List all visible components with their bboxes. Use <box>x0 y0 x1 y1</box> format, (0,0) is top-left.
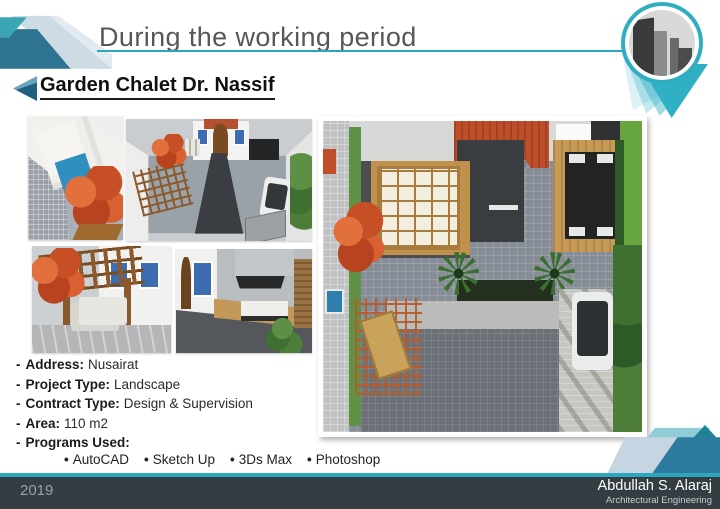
dash: - <box>16 416 21 431</box>
paved-ground <box>32 325 171 353</box>
house-entry <box>489 205 518 210</box>
program-name: AutoCAD <box>73 452 129 467</box>
black-umbrella <box>236 276 285 288</box>
detail-project-type: -Project Type:Landscape <box>16 375 336 395</box>
cushion <box>597 227 613 236</box>
bullet: • <box>307 452 312 467</box>
program-name: Sketch Up <box>153 452 215 467</box>
detail-label: Project Type: <box>26 377 111 392</box>
project-details: -Address:Nusairat -Project Type:Landscap… <box>16 355 336 453</box>
orange-tree <box>333 202 384 286</box>
detail-label: Area: <box>26 416 61 431</box>
thumbnail-pergola-render <box>32 246 171 353</box>
hedge-plants <box>290 146 312 231</box>
detail-area: -Area:110 m2 <box>16 414 336 434</box>
cushion <box>569 154 585 163</box>
building-silhouette <box>654 31 667 76</box>
programs-list: •AutoCAD •Sketch Up •3Ds Max •Photoshop <box>64 452 380 467</box>
bullet: • <box>64 452 69 467</box>
outdoor-sofa <box>241 301 287 316</box>
city-buildings-photo <box>629 10 695 76</box>
outdoor-seating <box>249 139 279 161</box>
program-3dsmax: •3Ds Max <box>230 452 292 467</box>
detail-value: 110 m2 <box>64 416 108 431</box>
detail-label: Contract Type: <box>26 396 120 411</box>
footer-year: 2019 <box>20 482 53 499</box>
outdoor-furniture <box>79 297 126 325</box>
orange-tree <box>148 134 189 173</box>
window <box>234 129 245 146</box>
slide: During the working period Garden Chalet … <box>0 0 720 509</box>
window <box>192 261 212 296</box>
detail-programs-used: -Programs Used: <box>16 433 336 453</box>
dash: - <box>16 435 21 450</box>
map-pin-icon <box>621 2 703 84</box>
project-name: Garden Chalet Dr. Nassif <box>40 74 275 100</box>
small-pool <box>325 289 344 314</box>
program-sketchup: •Sketch Up <box>144 452 215 467</box>
bullet: • <box>144 452 149 467</box>
corner-decoration-top-left <box>0 8 112 74</box>
pergola-louvers <box>377 166 460 250</box>
arched-door <box>181 257 191 309</box>
thumbnail-pool-render <box>28 116 123 240</box>
thumbnail-patio-render <box>176 249 312 353</box>
dash: - <box>16 396 21 411</box>
footer-author-block: Abdullah S. Alaraj Architectural Enginee… <box>598 478 712 506</box>
detail-value: Nusairat <box>88 357 138 372</box>
main-top-view-render <box>318 116 647 437</box>
corner-decoration-bottom-right <box>595 424 720 473</box>
detail-label: Address: <box>26 357 85 372</box>
dash: - <box>16 377 21 392</box>
red-roof-edge <box>323 149 336 174</box>
program-photoshop: •Photoshop <box>307 452 380 467</box>
building-silhouette <box>633 18 654 76</box>
palm-plant <box>438 252 479 296</box>
program-autocad: •AutoCAD <box>64 452 129 467</box>
title-underline <box>97 50 622 52</box>
cushion <box>569 227 585 236</box>
building-silhouette <box>678 48 693 76</box>
footer-bar: 2019 Abdullah S. Alaraj Architectural En… <box>0 477 720 509</box>
subtitle-arrow-icon <box>13 76 37 101</box>
bullet: • <box>230 452 235 467</box>
garden-plan-image <box>323 121 642 432</box>
detail-value: Landscape <box>114 377 180 392</box>
white-car-top-view <box>572 292 613 370</box>
detail-label: Programs Used: <box>26 435 130 450</box>
footer-department: Architectural Engineering <box>598 495 712 506</box>
thumbnail-aerial-render <box>126 119 312 241</box>
sky-background <box>235 249 295 276</box>
cushion <box>597 154 613 163</box>
program-name: Photoshop <box>316 452 381 467</box>
plants <box>258 318 307 353</box>
arched-door <box>213 124 228 156</box>
dash: - <box>16 357 21 372</box>
detail-value: Design & Supervision <box>124 396 253 411</box>
bushes-right <box>613 245 642 432</box>
wood-planter <box>72 224 123 240</box>
program-name: 3Ds Max <box>239 452 292 467</box>
detail-address: -Address:Nusairat <box>16 355 336 375</box>
footer-author-name: Abdullah S. Alaraj <box>598 478 712 495</box>
page-title: During the working period <box>99 22 417 53</box>
detail-contract-type: -Contract Type:Design & Supervision <box>16 394 336 414</box>
